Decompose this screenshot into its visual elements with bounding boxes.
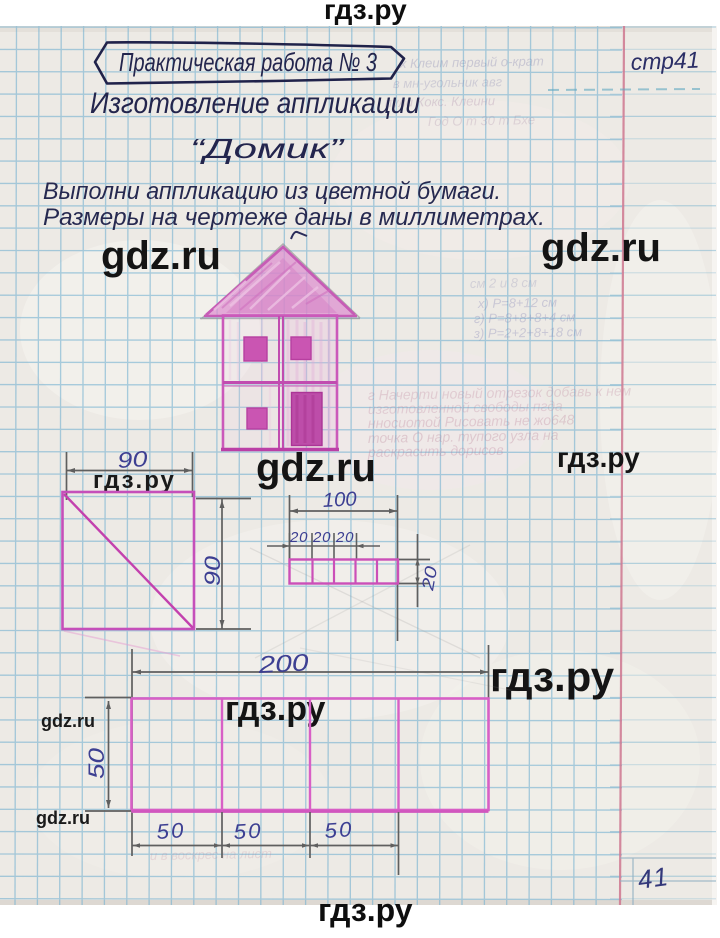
svg-text:гдз.ру: гдз.ру: [557, 442, 640, 473]
svg-text:гдз.ру: гдз.ру: [324, 0, 407, 25]
svg-text:Выполни аппликацию из цветной: Выполни аппликацию из цветной бумаги.: [43, 178, 501, 205]
svg-text:х Клеим первый о-крат: х Клеим первый о-крат: [399, 53, 544, 71]
svg-text:х) Р=8+12 см: х) Р=8+12 см: [477, 295, 557, 311]
svg-text:“Домик”: “Домик”: [190, 133, 345, 164]
svg-text:20: 20: [289, 529, 308, 546]
svg-text:50: 50: [156, 819, 187, 844]
svg-text:gdz.ru: gdz.ru: [41, 711, 95, 731]
svg-text:gdz.ru: gdz.ru: [36, 808, 90, 828]
svg-text:20: 20: [335, 529, 354, 546]
svg-text:gdz.ru: gdz.ru: [541, 226, 661, 270]
svg-text:gdz.ru: gdz.ru: [101, 234, 221, 278]
svg-text:гдз.ру: гдз.ру: [490, 653, 615, 700]
svg-text:gdz.ru: gdz.ru: [256, 446, 376, 490]
svg-text:Размеры на чертеже даны в милл: Размеры на чертеже даны в миллиметрах.: [43, 204, 545, 231]
svg-text:раскрасить дорисов: раскрасить дорисов: [367, 442, 504, 460]
svg-text:50: 50: [324, 818, 355, 843]
svg-text:50: 50: [233, 820, 263, 844]
svg-text:20: 20: [312, 529, 331, 546]
svg-text:з) Р=2+2+8+18 см: з) Р=2+2+8+18 см: [473, 324, 583, 341]
svg-text:100: 100: [322, 488, 357, 512]
svg-text:г) Р=8+8+8+4 см: г) Р=8+8+8+4 см: [474, 309, 576, 326]
svg-text:гдз.ру: гдз.ру: [318, 892, 413, 928]
svg-text:Год О т 30 т Бхе: Год О т 30 т Бхе: [428, 112, 535, 129]
svg-text:стр41: стр41: [630, 47, 700, 75]
svg-text:Практическая работа № 3: Практическая работа № 3: [119, 47, 377, 77]
svg-text:Изготовление аппликации: Изготовление аппликации: [90, 87, 420, 120]
svg-text:и в воскрес на лист: и в воскрес на лист: [150, 846, 272, 863]
svg-text:200: 200: [257, 649, 310, 679]
svg-text:90: 90: [117, 446, 150, 473]
svg-text:см 2 и 8 см: см 2 и 8 см: [470, 275, 537, 291]
svg-text:90: 90: [200, 555, 225, 586]
svg-text:41: 41: [636, 861, 671, 895]
svg-text:50: 50: [84, 747, 109, 779]
